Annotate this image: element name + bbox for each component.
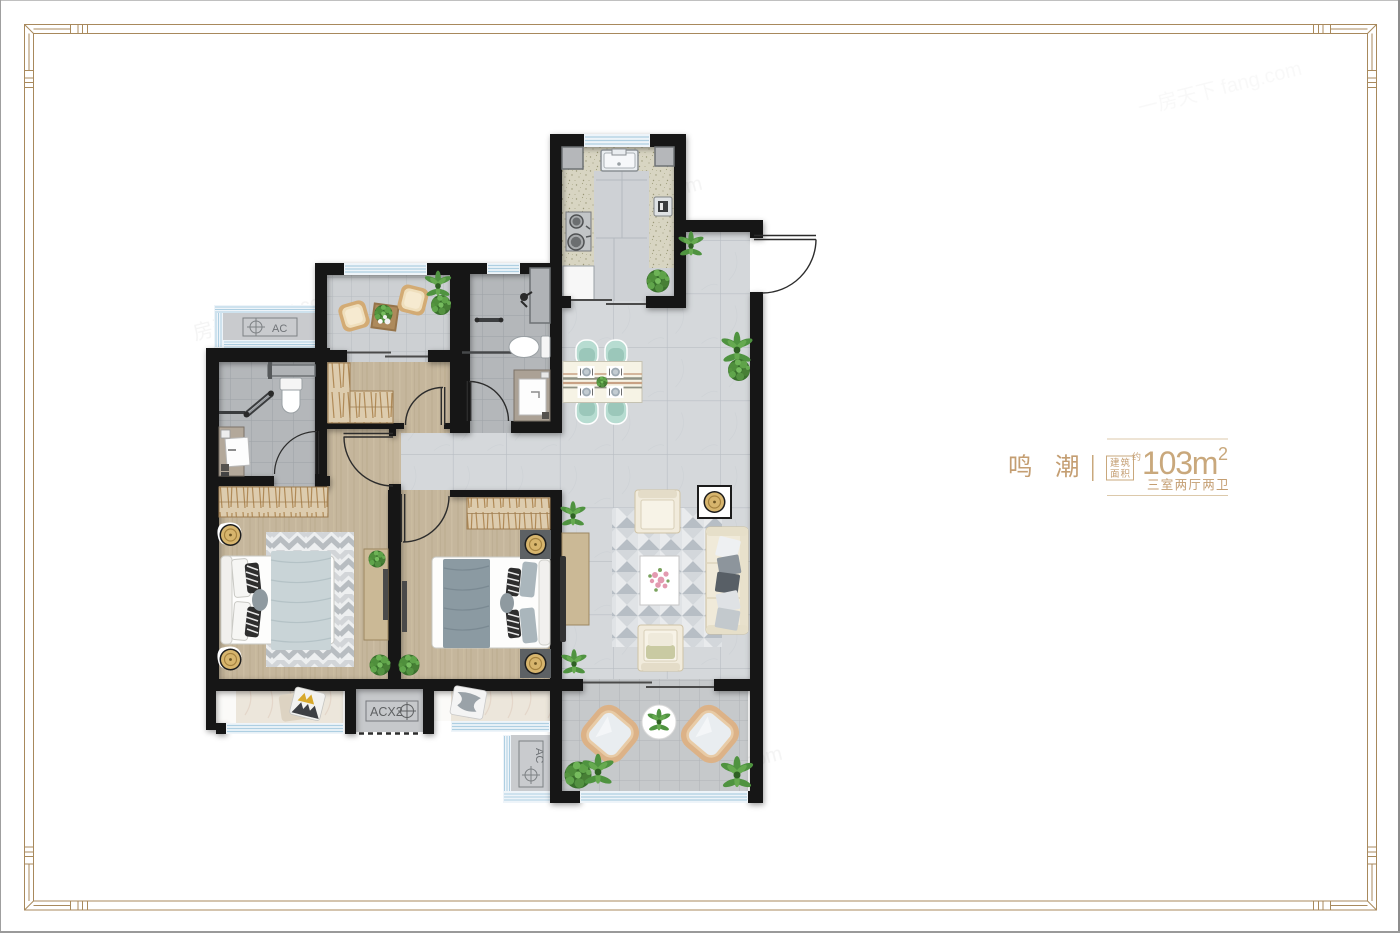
svg-text:2: 2 (1218, 444, 1228, 464)
svg-text:AC: AC (272, 323, 287, 335)
svg-text:ACX2: ACX2 (370, 705, 403, 719)
svg-text:面积: 面积 (1110, 468, 1131, 480)
svg-text:三室两厅两卫: 三室两厅两卫 (1147, 477, 1230, 492)
svg-text:建筑: 建筑 (1110, 457, 1131, 469)
svg-text:103m: 103m (1142, 445, 1217, 481)
svg-text:AC: AC (533, 748, 545, 763)
svg-text:约: 约 (1132, 451, 1141, 462)
svg-text:鸣潮: 鸣潮 (1008, 453, 1102, 481)
